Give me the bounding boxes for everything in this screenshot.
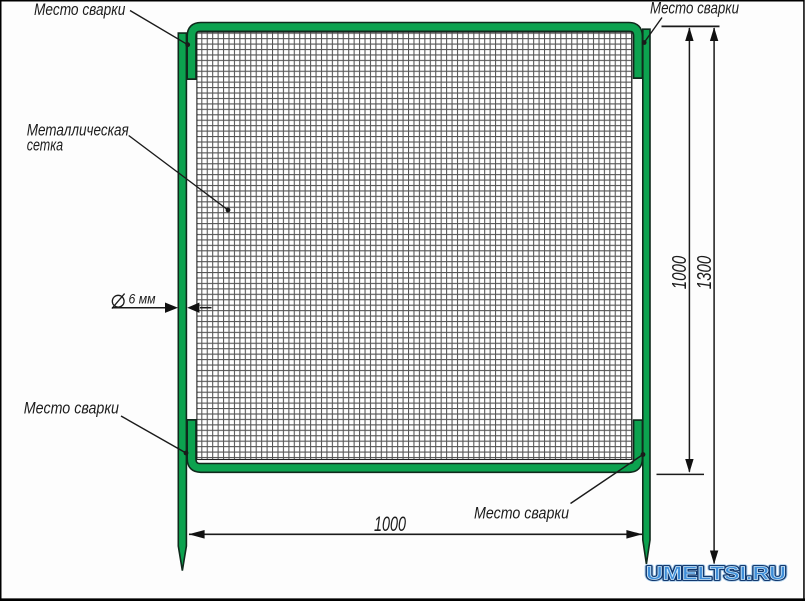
svg-text:Место сварки: Место сварки bbox=[24, 399, 120, 418]
svg-text:Место сварки: Место сварки bbox=[650, 0, 739, 18]
svg-text:1000: 1000 bbox=[669, 256, 691, 290]
svg-text:6 мм: 6 мм bbox=[129, 292, 156, 308]
svg-text:Место сварки: Место сварки bbox=[34, 0, 126, 19]
svg-text:сетка: сетка bbox=[27, 135, 63, 154]
svg-text:1300: 1300 bbox=[694, 256, 716, 290]
svg-text:UMELTSI.RU: UMELTSI.RU bbox=[646, 563, 786, 584]
svg-text:1000: 1000 bbox=[374, 513, 406, 536]
svg-text:Место сварки: Место сварки bbox=[474, 504, 569, 523]
